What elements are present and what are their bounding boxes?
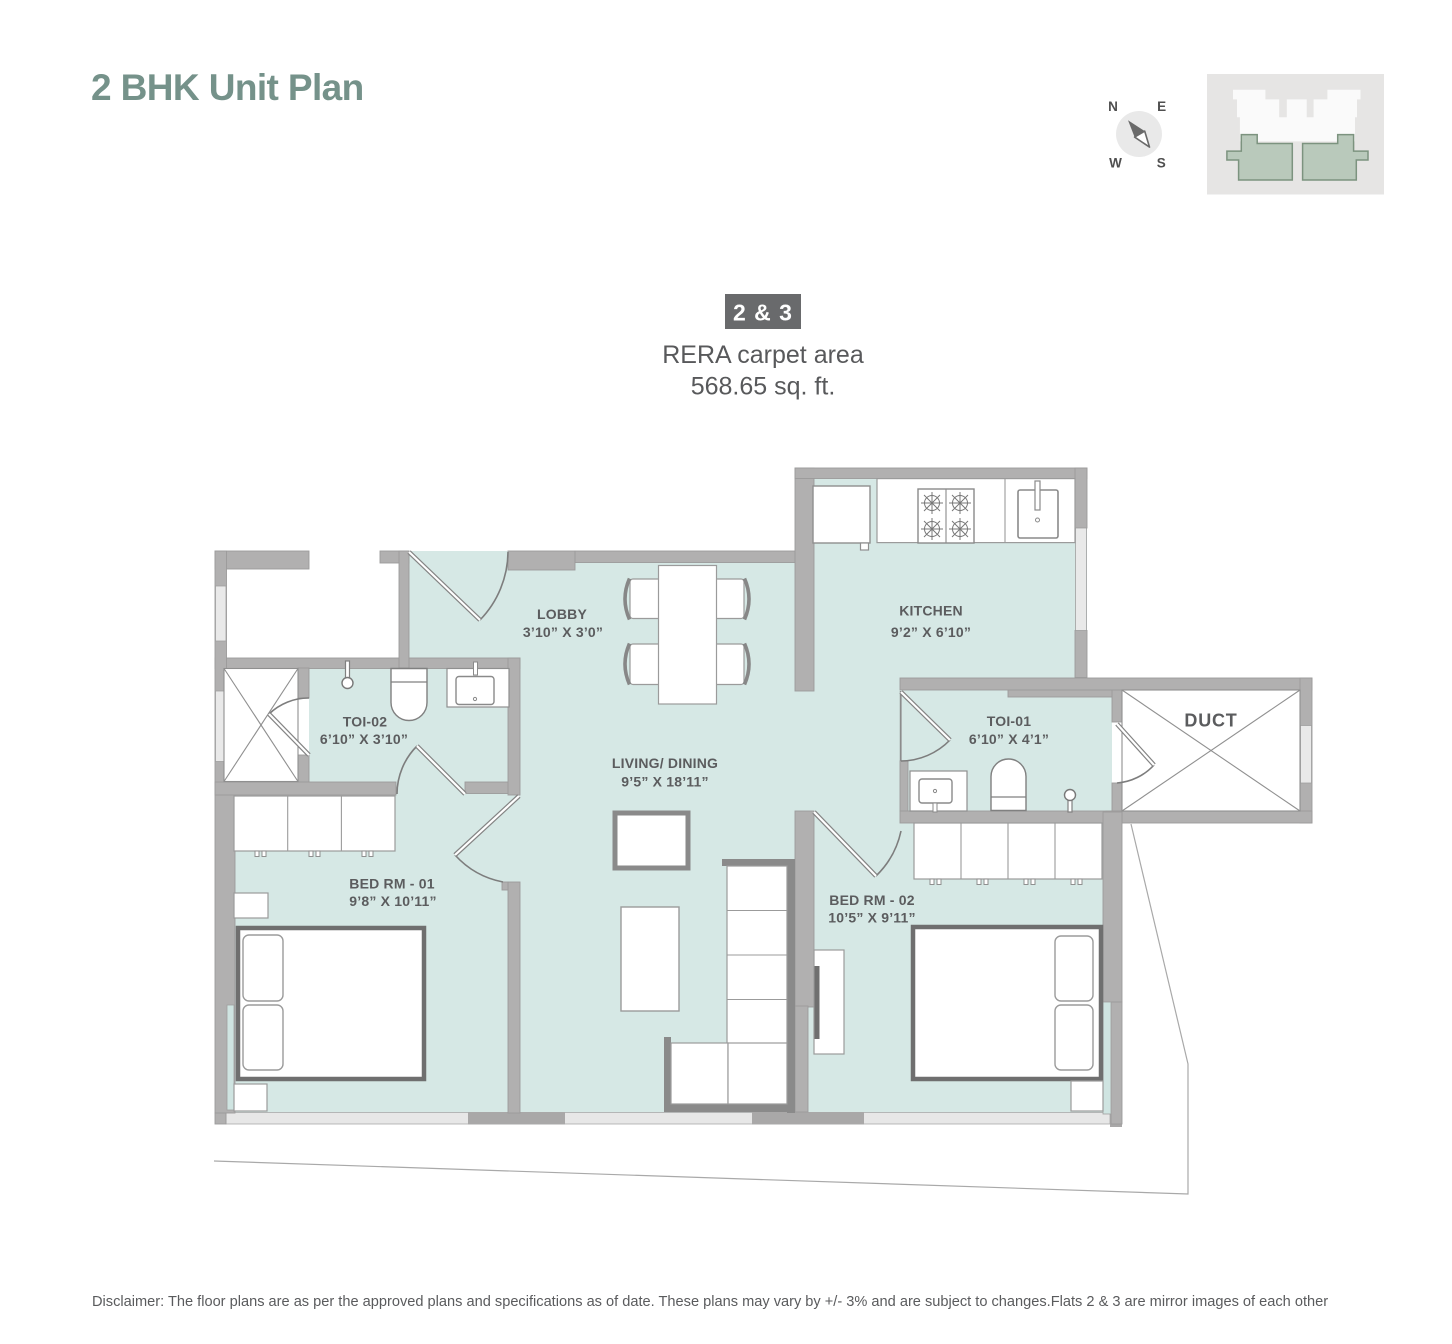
svg-text:Disclaimer: The floor plans ar: Disclaimer: The floor plans are as per t… <box>92 1294 1328 1310</box>
svg-text:TOI-01: TOI-01 <box>987 713 1032 729</box>
svg-text:9’8” X 10’11”: 9’8” X 10’11” <box>349 893 436 909</box>
svg-text:6’10” X 3’10”: 6’10” X 3’10” <box>320 731 408 747</box>
svg-text:3’10” X 3’0”: 3’10” X 3’0” <box>523 624 603 640</box>
svg-text:BED RM - 01: BED RM - 01 <box>349 876 434 892</box>
svg-text:LIVING/ DINING: LIVING/ DINING <box>612 755 718 771</box>
svg-text:W: W <box>1109 156 1122 171</box>
svg-text:KITCHEN: KITCHEN <box>899 603 963 619</box>
svg-text:9’5” X 18’11”: 9’5” X 18’11” <box>621 774 708 790</box>
svg-text:6’10” X 4’1”: 6’10” X 4’1” <box>969 731 1049 747</box>
svg-text:N: N <box>1108 99 1118 114</box>
svg-text:568.65 sq. ft.: 568.65 sq. ft. <box>691 373 836 401</box>
svg-text:2 BHK Unit Plan: 2 BHK Unit Plan <box>91 67 364 108</box>
svg-text:TOI-02: TOI-02 <box>343 714 388 730</box>
svg-text:S: S <box>1157 156 1166 171</box>
svg-text:BED RM - 02: BED RM - 02 <box>829 892 914 908</box>
svg-text:DUCT: DUCT <box>1184 711 1237 731</box>
svg-text:9’2” X 6’10”: 9’2” X 6’10” <box>891 624 971 640</box>
svg-text:2 & 3: 2 & 3 <box>733 300 793 326</box>
svg-text:LOBBY: LOBBY <box>537 606 587 622</box>
svg-text:10’5” X 9’11”: 10’5” X 9’11” <box>828 910 915 926</box>
svg-text:RERA carpet area: RERA carpet area <box>662 341 864 369</box>
svg-text:E: E <box>1157 99 1166 114</box>
